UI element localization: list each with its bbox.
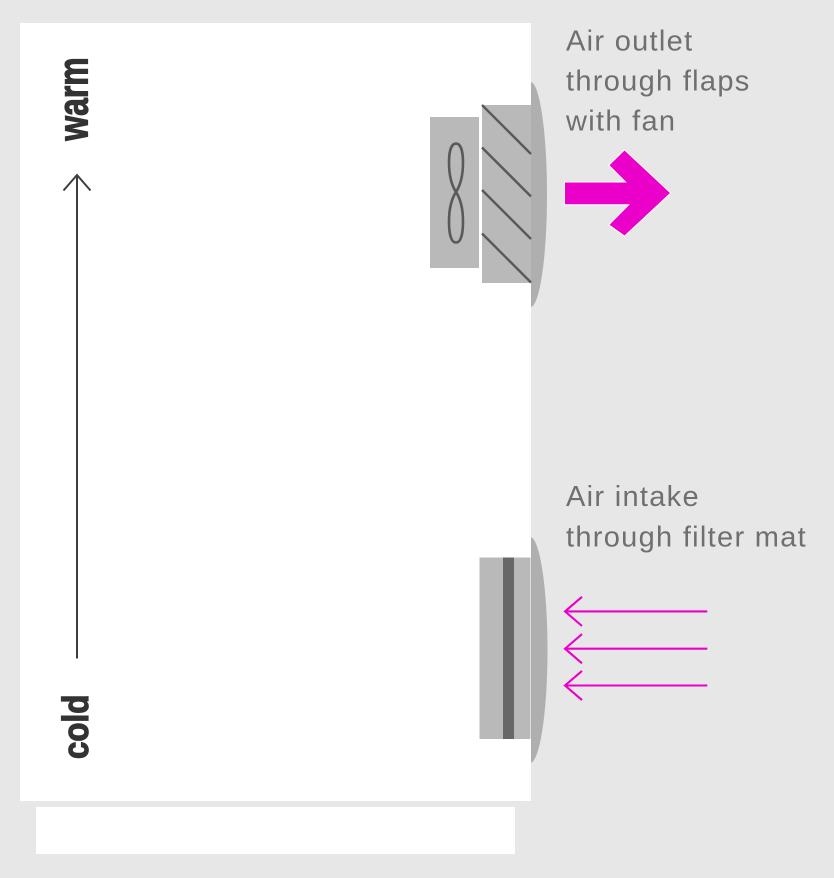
- svg-text:Air intake: Air intake: [566, 481, 700, 513]
- svg-text:Air outlet: Air outlet: [566, 26, 693, 58]
- svg-text:warm: warm: [49, 57, 96, 141]
- svg-text:through filter mat: through filter mat: [566, 522, 807, 554]
- svg-text:through flaps: through flaps: [566, 66, 751, 98]
- svg-text:with fan: with fan: [565, 106, 676, 138]
- svg-text:cold: cold: [56, 695, 97, 759]
